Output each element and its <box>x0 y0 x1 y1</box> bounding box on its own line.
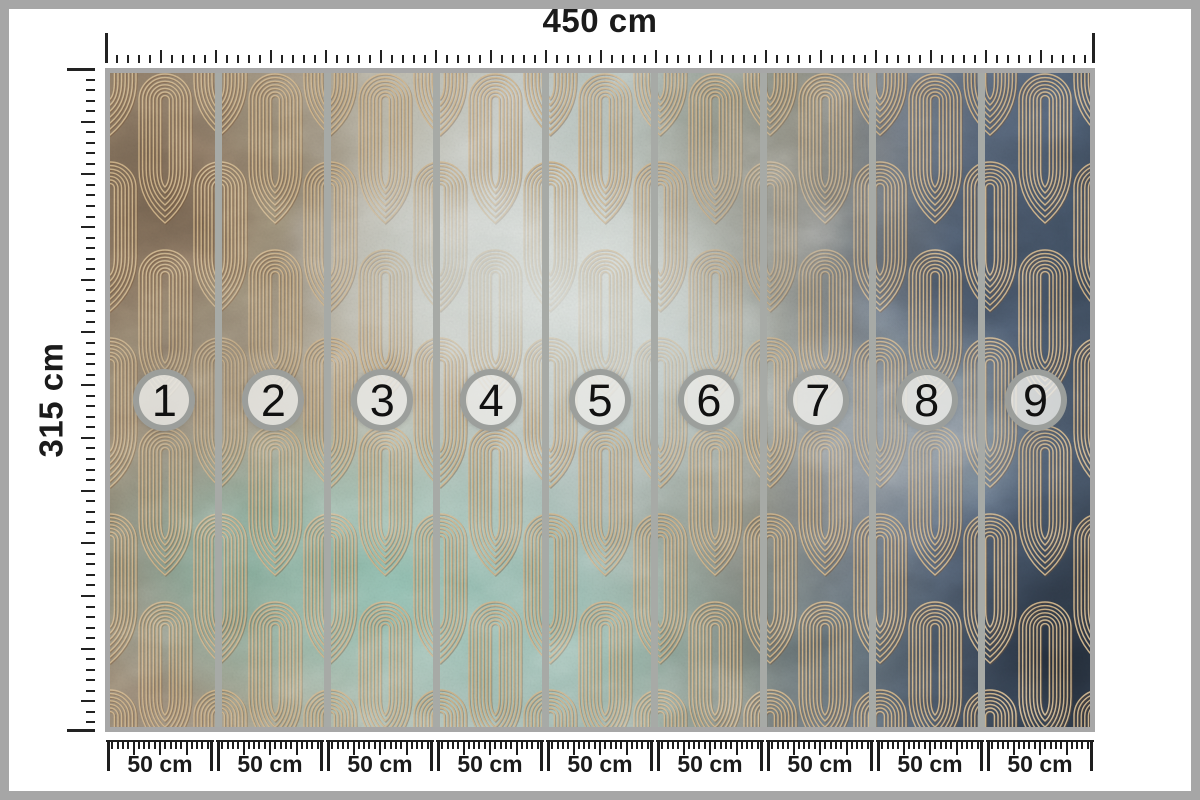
tick <box>337 740 339 749</box>
tick <box>615 740 617 749</box>
segment-width-label: 50 cm <box>765 751 875 777</box>
tick <box>531 740 533 749</box>
panel-separator <box>651 73 658 727</box>
tick <box>537 740 539 749</box>
tick <box>743 55 745 63</box>
panel-number: 4 <box>479 378 504 423</box>
tick <box>86 616 95 618</box>
tick <box>545 50 547 63</box>
tick <box>787 55 789 63</box>
tick <box>290 740 292 749</box>
tick <box>86 521 95 523</box>
tick <box>368 740 370 749</box>
top-ruler <box>105 33 1095 63</box>
tick <box>86 679 95 681</box>
tick <box>105 33 108 63</box>
tick <box>416 740 418 749</box>
tick <box>86 184 95 186</box>
tick <box>86 268 95 270</box>
segment-width-label: 50 cm <box>655 751 765 777</box>
tick <box>81 648 95 650</box>
tick <box>494 740 496 749</box>
tick <box>924 740 926 749</box>
tick <box>861 740 863 749</box>
tick <box>81 331 95 333</box>
panel-number-badge: 3 <box>351 369 413 431</box>
tick <box>468 55 470 63</box>
tick <box>996 55 998 63</box>
tick <box>86 374 95 376</box>
tick <box>1060 740 1062 749</box>
tick <box>127 55 129 63</box>
tick <box>380 50 382 63</box>
tick <box>985 50 987 63</box>
tick <box>831 55 833 63</box>
bottom-ruler: 50 cm50 cm50 cm50 cm50 cm50 cm50 cm50 cm… <box>105 740 1095 788</box>
tick <box>160 50 162 63</box>
tick <box>667 740 669 749</box>
tick <box>913 740 915 749</box>
bottom-ruler-segment: 50 cm <box>545 740 655 788</box>
tick <box>1055 740 1057 749</box>
tick <box>974 55 976 63</box>
tick <box>363 740 365 749</box>
panel-number-badge: 7 <box>787 369 849 431</box>
tick <box>710 50 712 63</box>
tick <box>86 395 95 397</box>
tick <box>86 310 95 312</box>
panel-number: 7 <box>805 378 830 423</box>
bottom-ruler-segment: 50 cm <box>655 740 765 788</box>
tick <box>1081 740 1083 749</box>
panel-number-badge: 8 <box>896 369 958 431</box>
tick <box>413 55 415 63</box>
tick <box>945 740 947 749</box>
tick <box>237 740 239 749</box>
tick <box>930 50 932 63</box>
tick <box>941 55 943 63</box>
tick <box>1034 740 1036 749</box>
tick <box>67 68 95 71</box>
tick <box>452 740 454 749</box>
tick <box>86 426 95 428</box>
tick <box>86 721 95 723</box>
segment-width-label: 50 cm <box>215 751 325 777</box>
tick <box>86 300 95 302</box>
tick <box>803 740 805 749</box>
tick <box>1007 55 1009 63</box>
tick <box>741 740 743 749</box>
tick <box>1028 740 1030 749</box>
tick <box>201 740 203 749</box>
tick <box>86 405 95 407</box>
tick <box>1092 33 1095 63</box>
tick <box>500 740 502 749</box>
tick <box>221 740 223 749</box>
tick <box>776 55 778 63</box>
tick <box>1018 740 1020 749</box>
tick <box>86 163 95 165</box>
tick <box>86 89 95 91</box>
tick <box>730 740 732 749</box>
tick <box>86 237 95 239</box>
tick <box>116 55 118 63</box>
tick <box>693 740 695 749</box>
tick <box>704 740 706 749</box>
tick <box>86 289 95 291</box>
tick <box>952 55 954 63</box>
tick <box>631 740 633 749</box>
tick <box>950 740 952 749</box>
tick <box>86 627 95 629</box>
tick <box>170 740 172 749</box>
tick <box>698 740 700 749</box>
tick <box>567 740 569 749</box>
tick <box>672 740 674 749</box>
tick <box>424 55 426 63</box>
tick <box>143 740 145 749</box>
tick <box>391 55 393 63</box>
tick <box>751 740 753 749</box>
tick <box>578 740 580 749</box>
panel-separator <box>324 73 331 727</box>
tick <box>86 152 95 154</box>
tick <box>207 740 209 749</box>
tick <box>81 121 95 123</box>
tick <box>892 740 894 749</box>
tick <box>86 500 95 502</box>
tick <box>336 55 338 63</box>
tick <box>622 55 624 63</box>
tick <box>86 216 95 218</box>
tick <box>314 55 316 63</box>
tick <box>81 279 95 281</box>
tick <box>526 740 528 749</box>
tick <box>808 740 810 749</box>
panel-number-badge: 6 <box>678 369 740 431</box>
tick <box>86 690 95 692</box>
tick <box>688 740 690 749</box>
tick <box>720 740 722 749</box>
panel-number-badge: 5 <box>569 369 631 431</box>
tick <box>661 740 663 749</box>
panel-number-badge: 9 <box>1005 369 1067 431</box>
tick <box>86 711 95 713</box>
tick <box>620 740 622 749</box>
tick <box>997 740 999 749</box>
tick <box>765 50 767 63</box>
tick <box>311 740 313 749</box>
tick <box>721 55 723 63</box>
tick <box>259 55 261 63</box>
tick <box>510 740 512 749</box>
bottom-ruler-segment: 50 cm <box>985 740 1095 788</box>
tick <box>588 740 590 749</box>
tick <box>578 55 580 63</box>
tick <box>148 740 150 749</box>
tick <box>1007 740 1009 749</box>
tick <box>814 740 816 749</box>
tick <box>81 437 95 439</box>
tick <box>86 563 95 565</box>
tick <box>81 490 95 492</box>
tick <box>86 606 95 608</box>
segment-width-label: 50 cm <box>105 751 215 777</box>
tick <box>501 55 503 63</box>
bottom-ruler-segment: 50 cm <box>325 740 435 788</box>
tick <box>647 740 649 749</box>
tick <box>798 55 800 63</box>
tick <box>699 55 701 63</box>
tick <box>835 740 837 749</box>
tick <box>117 740 119 749</box>
tick <box>1051 55 1053 63</box>
tick <box>864 55 866 63</box>
tick <box>441 740 443 749</box>
tick <box>604 740 606 749</box>
tick <box>86 469 95 471</box>
panel-number: 1 <box>152 378 177 423</box>
tick <box>402 55 404 63</box>
tick <box>479 55 481 63</box>
bottom-ruler-segment: 50 cm <box>105 740 215 788</box>
tick <box>688 55 690 63</box>
tick <box>301 740 303 749</box>
panel-separator <box>215 73 222 727</box>
tick <box>86 363 95 365</box>
panel-number: 5 <box>587 378 612 423</box>
tick <box>484 740 486 749</box>
tick <box>641 740 643 749</box>
segment-width-label: 50 cm <box>545 751 655 777</box>
tick <box>851 740 853 749</box>
tick <box>215 50 217 63</box>
tick <box>86 511 95 513</box>
bottom-ruler-segment: 50 cm <box>765 740 875 788</box>
tick <box>86 416 95 418</box>
tick <box>468 740 470 749</box>
tick <box>610 740 612 749</box>
tick <box>1002 740 1004 749</box>
tick <box>963 55 965 63</box>
tick <box>1073 55 1075 63</box>
tick <box>991 740 993 749</box>
panel-separator <box>869 73 876 727</box>
tick <box>562 740 564 749</box>
tick <box>358 740 360 749</box>
tick <box>940 740 942 749</box>
tick <box>746 740 748 749</box>
tick <box>325 50 327 63</box>
tick <box>86 637 95 639</box>
tick <box>887 740 889 749</box>
tick <box>875 50 877 63</box>
tick <box>600 50 602 63</box>
tick <box>81 173 95 175</box>
tick <box>966 740 968 749</box>
panel-separator <box>542 73 549 727</box>
tick <box>154 740 156 749</box>
tick <box>757 740 759 749</box>
wall-mural-preview: 123456789 <box>105 68 1095 732</box>
tick <box>830 740 832 749</box>
tick <box>182 55 184 63</box>
panel-separator <box>978 73 985 727</box>
tick <box>86 658 95 660</box>
tick <box>512 55 514 63</box>
panel-number: 3 <box>370 378 395 423</box>
tick <box>897 740 899 749</box>
tick <box>86 142 95 144</box>
bottom-ruler-segment: 50 cm <box>435 740 545 788</box>
tick <box>551 740 553 749</box>
tick <box>820 50 822 63</box>
tick <box>86 131 95 133</box>
tick <box>918 740 920 749</box>
tick <box>666 55 668 63</box>
tick <box>655 50 657 63</box>
tick <box>390 740 392 749</box>
tick <box>248 740 250 749</box>
panel-number-badge: 4 <box>460 369 522 431</box>
tick <box>473 740 475 749</box>
tick <box>111 740 113 749</box>
tick <box>258 740 260 749</box>
tick <box>411 740 413 749</box>
tick <box>636 740 638 749</box>
tick <box>237 55 239 63</box>
tick <box>86 321 95 323</box>
tick <box>521 740 523 749</box>
tick <box>303 55 305 63</box>
bottom-ruler-segment: 50 cm <box>215 740 325 788</box>
tick <box>1087 740 1089 749</box>
tick <box>86 353 95 355</box>
tick <box>281 55 283 63</box>
tick <box>384 740 386 749</box>
tick <box>395 740 397 749</box>
tick <box>457 740 459 749</box>
tick <box>193 55 195 63</box>
tick <box>677 740 679 749</box>
tick <box>86 205 95 207</box>
tick <box>1029 55 1031 63</box>
tick <box>589 55 591 63</box>
tick <box>421 740 423 749</box>
tick <box>732 55 734 63</box>
tick <box>86 110 95 112</box>
tick <box>457 55 459 63</box>
panel-number: 2 <box>261 378 286 423</box>
tick <box>824 740 826 749</box>
tick <box>86 669 95 671</box>
tick <box>369 55 371 63</box>
tick <box>886 55 888 63</box>
tick <box>644 55 646 63</box>
tick <box>556 55 558 63</box>
tick <box>523 55 525 63</box>
tick <box>611 55 613 63</box>
tick <box>86 553 95 555</box>
tick <box>253 740 255 749</box>
tick <box>149 55 151 63</box>
tick <box>274 740 276 749</box>
tick <box>86 79 95 81</box>
tick <box>191 740 193 749</box>
tick <box>594 740 596 749</box>
tick <box>908 740 910 749</box>
tick <box>280 740 282 749</box>
tick <box>787 740 789 749</box>
tick <box>285 740 287 749</box>
tick <box>1018 55 1020 63</box>
tick <box>435 50 437 63</box>
tick <box>1050 740 1052 749</box>
panel-number: 6 <box>696 378 721 423</box>
tick <box>842 55 844 63</box>
tick <box>583 740 585 749</box>
tick <box>427 740 429 749</box>
tick <box>81 542 95 544</box>
tick <box>86 458 95 460</box>
panel-number: 8 <box>914 378 939 423</box>
tick <box>567 55 569 63</box>
segment-width-label: 50 cm <box>985 751 1095 777</box>
tick <box>447 740 449 749</box>
tick <box>934 740 936 749</box>
panel-separator <box>433 73 440 727</box>
tick <box>86 574 95 576</box>
panel-separator <box>760 73 767 727</box>
tick <box>86 447 95 449</box>
tick <box>881 740 883 749</box>
tick <box>196 740 198 749</box>
tick <box>86 584 95 586</box>
tick <box>400 740 402 749</box>
tick <box>138 740 140 749</box>
tick <box>446 55 448 63</box>
tick <box>86 194 95 196</box>
tick <box>677 55 679 63</box>
tick <box>534 55 536 63</box>
tick <box>633 55 635 63</box>
tick <box>86 247 95 249</box>
tick <box>81 384 95 386</box>
segment-width-label: 50 cm <box>875 751 985 777</box>
tick <box>164 740 166 749</box>
tick <box>1023 740 1025 749</box>
tick <box>908 55 910 63</box>
tick <box>1076 740 1078 749</box>
tick <box>226 55 228 63</box>
tick <box>867 740 869 749</box>
tick <box>86 532 95 534</box>
tick <box>204 55 206 63</box>
tick <box>127 740 129 749</box>
tick <box>777 740 779 749</box>
tick <box>977 740 979 749</box>
tick <box>264 740 266 749</box>
tick <box>342 740 344 749</box>
tick <box>81 226 95 228</box>
tick <box>227 740 229 749</box>
tick <box>81 700 95 702</box>
tick <box>853 55 855 63</box>
tick <box>1062 55 1064 63</box>
tick <box>1044 740 1046 749</box>
tick <box>86 479 95 481</box>
tick <box>67 729 95 732</box>
